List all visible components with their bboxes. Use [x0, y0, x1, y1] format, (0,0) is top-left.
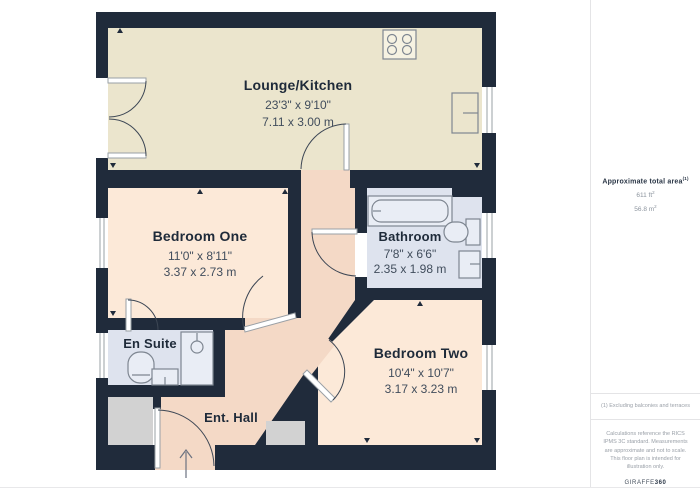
window-icon	[482, 345, 496, 390]
floor-plan: Lounge/Kitchen 23'3" x 9'10" 7.11 x 3.00…	[0, 0, 590, 495]
bathtub-icon	[368, 196, 452, 226]
sink-icon	[152, 369, 178, 385]
room-dims-imperial: 11'0" x 8'11"	[168, 249, 232, 263]
total-area-title: Approximate total area(1)	[591, 176, 700, 185]
room-label-ent-hall: Ent. Hall	[204, 410, 258, 425]
sink-icon	[459, 251, 480, 278]
wall	[288, 188, 301, 318]
outside-area	[108, 397, 153, 445]
area-footnote: (1) Excluding balconies and terraces	[591, 393, 700, 409]
window-icon	[96, 333, 108, 378]
room-label-bathroom: Bathroom	[379, 229, 442, 244]
bottom-divider	[0, 487, 700, 488]
toilet-icon	[444, 219, 480, 245]
wall	[96, 445, 155, 470]
wall	[96, 12, 496, 28]
info-sidebar: Approximate total area(1) 611 ft2 56.8 m…	[590, 0, 700, 487]
room-dims-imperial: 23'3" x 9'10"	[265, 98, 331, 112]
total-area-imperial: 611 ft2	[591, 190, 700, 199]
wall	[96, 12, 108, 78]
wall	[482, 258, 496, 345]
wall	[355, 188, 367, 233]
room-dims-imperial: 7'8" x 6'6"	[384, 247, 436, 261]
toilet-icon	[128, 352, 154, 383]
brand-name: GIRAFFE	[624, 480, 654, 486]
room-dims-metric: 2.35 x 1.98 m	[374, 262, 447, 276]
wall	[482, 390, 496, 445]
wall	[215, 445, 496, 470]
wall	[350, 170, 496, 188]
entrance-gap-floor	[155, 445, 215, 470]
total-area-metric: 56.8 m2	[591, 204, 700, 213]
wall	[452, 188, 482, 197]
wall	[482, 12, 496, 87]
wall	[153, 397, 161, 409]
wall	[355, 288, 496, 300]
room-dims-metric: 3.17 x 3.23 m	[385, 382, 458, 396]
room-dims-metric: 3.37 x 2.73 m	[164, 265, 237, 279]
window-icon	[96, 218, 108, 268]
total-area-metric-text: 56.8 m	[634, 207, 654, 214]
room-dims-imperial: 10'4" x 10'7"	[388, 366, 454, 380]
wall	[96, 385, 225, 397]
shower-icon	[181, 332, 213, 385]
floorplan-page: Lounge/Kitchen 23'3" x 9'10" 7.11 x 3.00…	[0, 0, 700, 495]
total-area-title-text: Approximate total area	[602, 178, 682, 185]
room-dims-metric: 7.11 x 3.00 m	[262, 115, 334, 129]
total-area-imperial-sup: 2	[652, 190, 655, 195]
room-label-bedroom-one: Bedroom One	[153, 228, 248, 244]
room-label-lounge-kitchen: Lounge/Kitchen	[244, 77, 353, 93]
total-area-metric-sup: 2	[654, 204, 657, 209]
wall	[96, 170, 301, 188]
room-label-bedroom-two: Bedroom Two	[374, 345, 469, 361]
window-icon	[482, 87, 496, 133]
disclaimer-block: Calculations reference the RICS IPMS 3C …	[591, 419, 700, 488]
outside-area	[266, 421, 305, 445]
disclaimer-text: Calculations reference the RICS IPMS 3C …	[600, 430, 691, 471]
brand-suffix: 360	[655, 480, 667, 486]
total-area-title-sup: (1)	[683, 176, 689, 181]
hob-icon	[383, 30, 416, 59]
total-area-imperial-text: 611 ft	[636, 192, 652, 199]
total-area-block: Approximate total area(1) 611 ft2 56.8 m…	[591, 176, 700, 214]
room-label-en-suite: En Suite	[123, 336, 177, 351]
window-icon	[482, 213, 496, 258]
